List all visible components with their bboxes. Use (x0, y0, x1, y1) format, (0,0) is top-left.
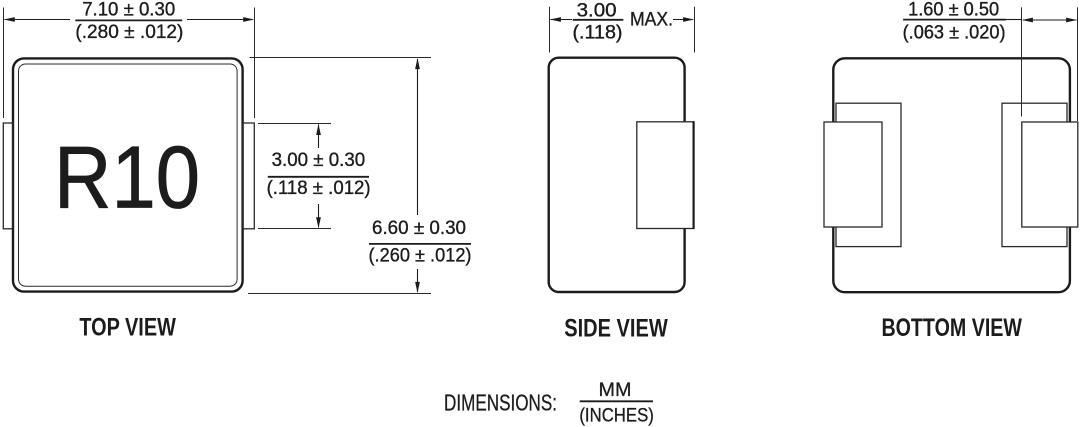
svg-text:(INCHES): (INCHES) (579, 404, 654, 426)
svg-text:(.118): (.118) (573, 23, 623, 44)
svg-text:(.280 ± .012): (.280 ± .012) (75, 22, 183, 43)
svg-text:TOP VIEW: TOP VIEW (79, 314, 176, 342)
svg-text:7.10 ± 0.30: 7.10 ± 0.30 (82, 0, 175, 21)
svg-text:3.00 ± 0.30: 3.00 ± 0.30 (272, 150, 366, 171)
svg-text:3.00: 3.00 (577, 0, 617, 21)
svg-text:1.60 ± 0.50: 1.60 ± 0.50 (908, 0, 999, 20)
svg-text:(.063 ± .020): (.063 ± .020) (903, 23, 1006, 44)
svg-text:(.260 ± .012): (.260 ± .012) (369, 245, 472, 266)
svg-text:R10: R10 (54, 127, 200, 226)
svg-text:MAX.: MAX. (630, 9, 673, 30)
svg-text:6.60 ± 0.30: 6.60 ± 0.30 (372, 218, 466, 239)
svg-text:SIDE VIEW: SIDE VIEW (564, 314, 668, 342)
svg-text:MM: MM (599, 379, 632, 401)
svg-text:(.118 ± .012): (.118 ± .012) (267, 178, 371, 199)
svg-text:BOTTOM VIEW: BOTTOM VIEW (881, 314, 1022, 342)
svg-text:DIMENSIONS:: DIMENSIONS: (444, 390, 557, 416)
